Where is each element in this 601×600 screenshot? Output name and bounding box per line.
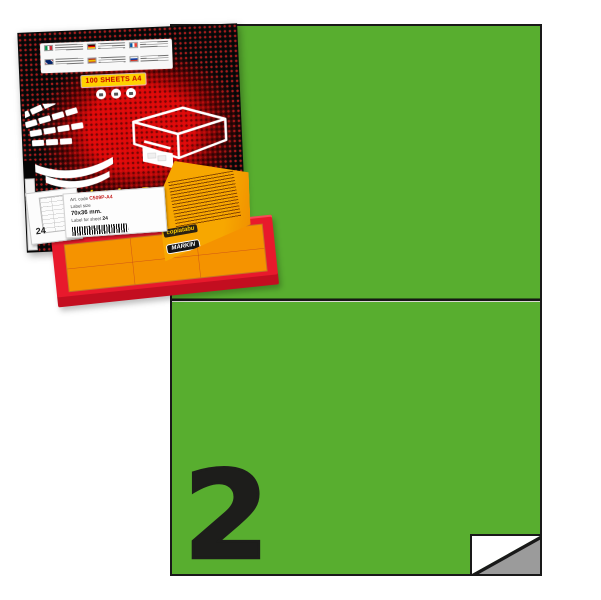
labels-per-sheet-number: 2 xyxy=(183,455,270,577)
germany-flag-icon xyxy=(87,43,96,49)
copier-icon xyxy=(111,88,121,98)
barcode xyxy=(72,223,128,236)
micro-text-lines xyxy=(140,41,168,49)
lang-entry-english xyxy=(44,58,83,71)
micro-text-lines xyxy=(55,58,83,66)
lang-entry-spanish xyxy=(87,56,126,69)
peeled-corner-icon xyxy=(470,534,542,576)
peel-corner-graphic xyxy=(472,536,540,574)
instruction-micro-text xyxy=(168,171,241,228)
per-sheet-label: Label for sheet xyxy=(71,216,101,223)
product-data-label: Art. code C509P-A4 Label size 70x36 mm. … xyxy=(63,186,168,238)
russia-flag-icon xyxy=(130,56,139,62)
uk-flag-icon xyxy=(44,59,53,65)
art-code-label: Art. code xyxy=(70,196,88,202)
spain-flag-icon xyxy=(87,57,96,63)
micro-text-lines xyxy=(98,42,126,50)
micro-text-lines xyxy=(141,55,169,63)
lang-entry-italian xyxy=(44,44,83,57)
lang-entry-french xyxy=(129,41,168,54)
lang-entry-russian xyxy=(130,55,169,68)
laser-printer-icon xyxy=(96,89,106,99)
product-image: 2 xyxy=(0,0,601,600)
micro-text-lines xyxy=(55,44,83,52)
flap-product-line: copiatabu xyxy=(163,224,198,238)
printer-compatibility-icons xyxy=(96,88,136,100)
multilingual-strip xyxy=(40,39,173,74)
micro-text-lines xyxy=(98,56,126,64)
art-code-value: C509P-A4 xyxy=(89,194,113,202)
panel-label-count: 24 xyxy=(35,225,46,236)
per-sheet-value: 24 xyxy=(102,215,108,221)
france-flag-icon xyxy=(129,42,138,48)
label-divider-line xyxy=(172,298,540,302)
lang-entry-german xyxy=(87,42,126,55)
inkjet-printer-icon xyxy=(126,88,136,98)
italy-flag-icon xyxy=(44,45,53,51)
